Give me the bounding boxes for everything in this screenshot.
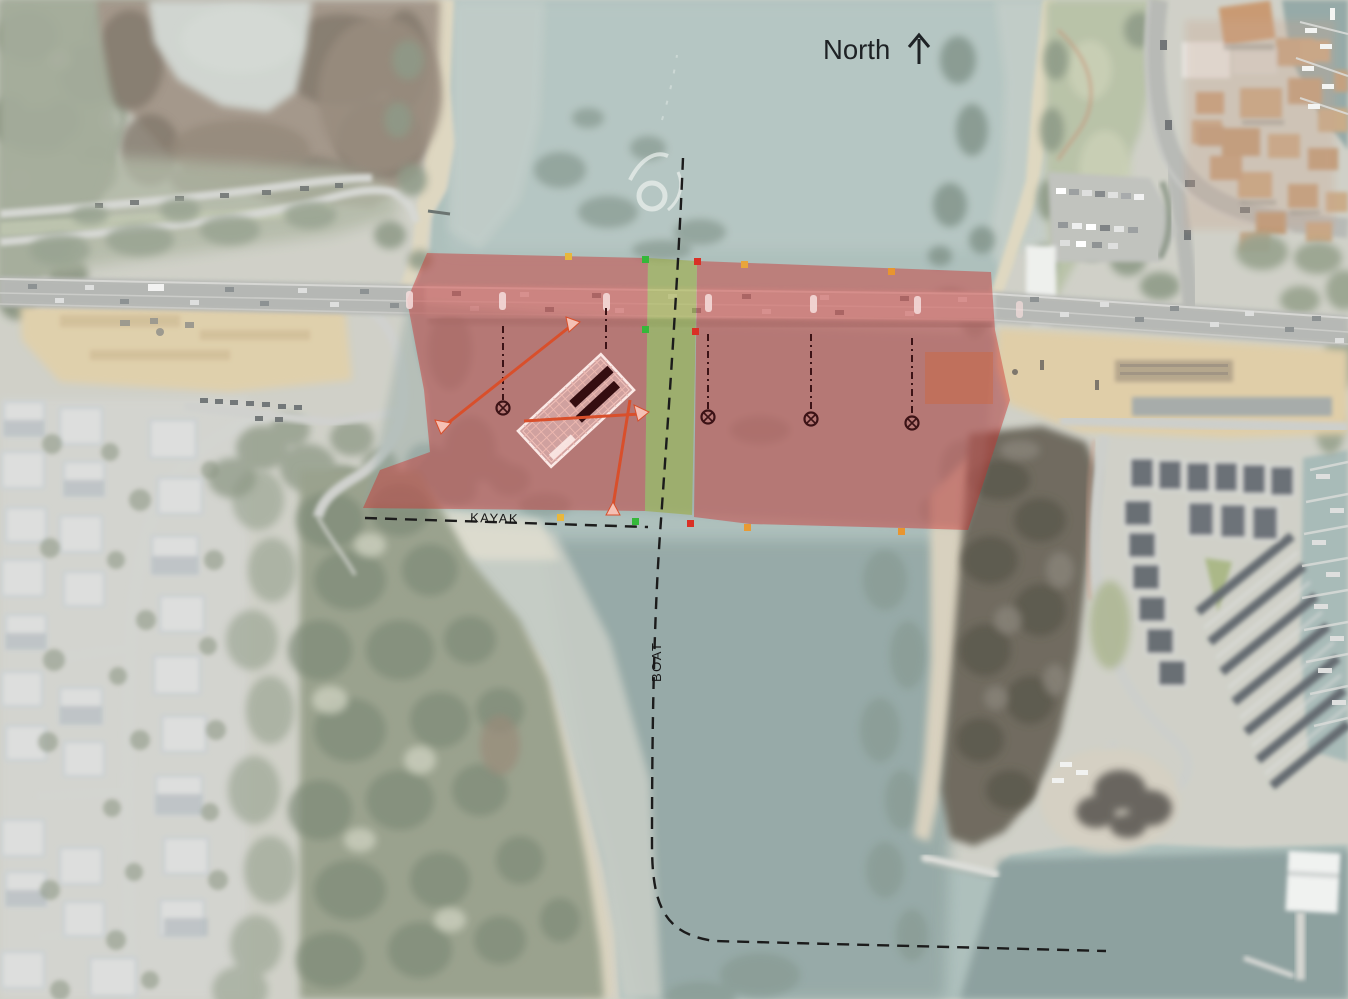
svg-text:BOAT: BOAT (649, 642, 664, 682)
svg-text:North: North (823, 34, 890, 65)
svg-text:KAYAK: KAYAK (470, 510, 519, 526)
